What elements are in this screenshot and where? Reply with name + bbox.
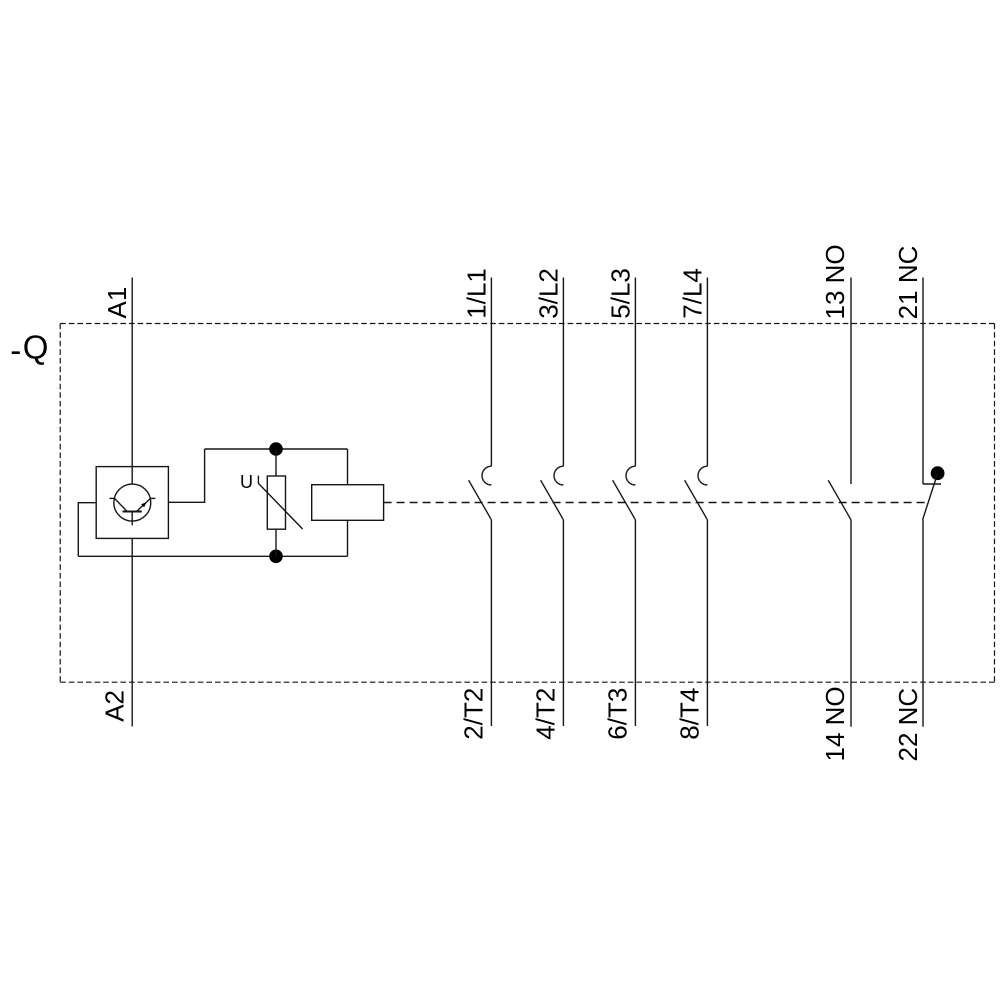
svg-text:1/L1: 1/L1 <box>462 268 492 319</box>
svg-text:21 NC: 21 NC <box>893 246 923 320</box>
svg-text:4/T2: 4/T2 <box>530 688 560 740</box>
svg-text:Q: Q <box>23 329 49 366</box>
svg-text:3/L2: 3/L2 <box>534 268 564 319</box>
svg-text:A2: A2 <box>99 690 129 722</box>
svg-text:7/L4: 7/L4 <box>678 268 708 319</box>
svg-text:6/T3: 6/T3 <box>602 688 632 740</box>
svg-text:13 NO: 13 NO <box>820 244 850 319</box>
svg-text:2/T2: 2/T2 <box>458 688 488 740</box>
svg-text:A1: A1 <box>102 287 132 319</box>
svg-text:22 NC: 22 NC <box>893 688 923 762</box>
svg-text:U: U <box>240 472 253 492</box>
svg-text:8/T4: 8/T4 <box>674 688 704 740</box>
svg-text:5/L3: 5/L3 <box>606 268 636 319</box>
svg-text:14 NO: 14 NO <box>820 686 850 761</box>
svg-text:-: - <box>10 331 21 368</box>
